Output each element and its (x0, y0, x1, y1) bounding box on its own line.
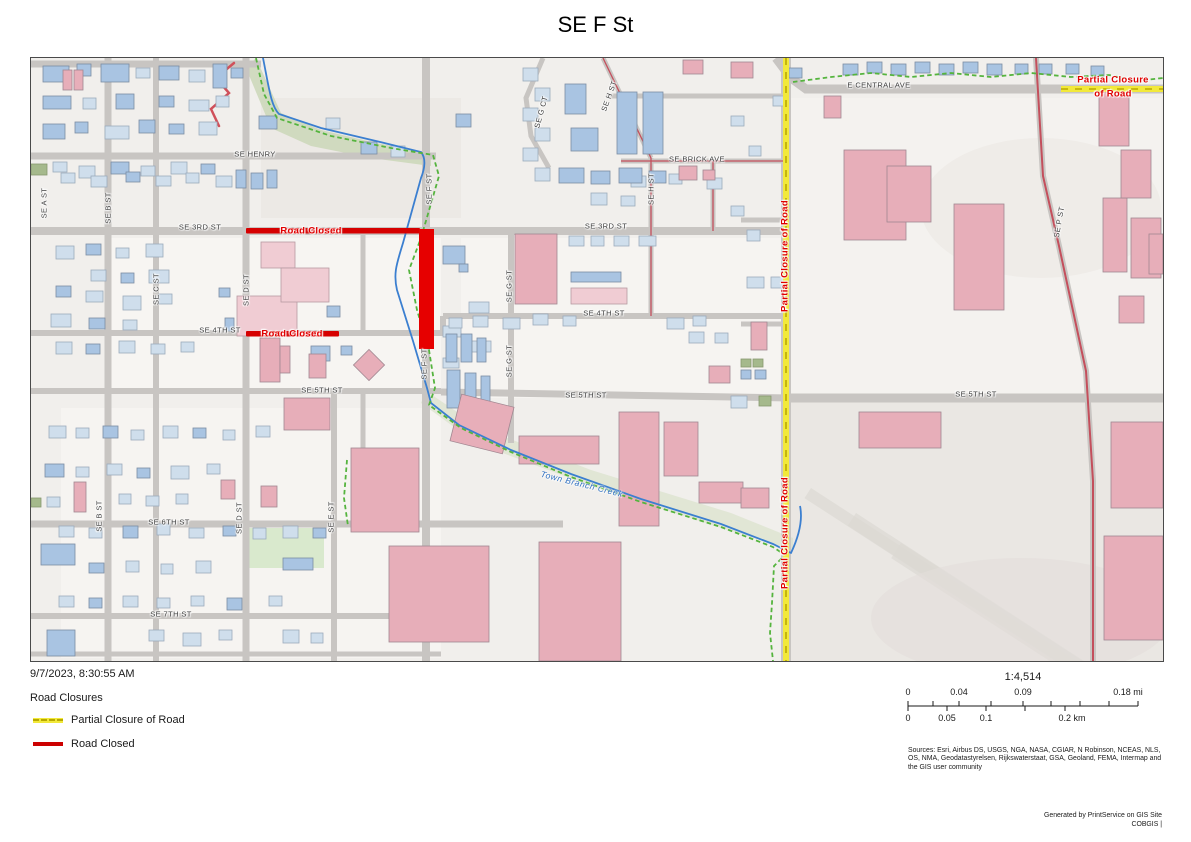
scale-km-label: 0.1 (980, 713, 993, 723)
street-label: SE B ST (95, 500, 104, 532)
street-label: SE H ST (647, 173, 656, 205)
street-label: SE F ST (425, 173, 434, 204)
scale-ratio: 1:4,514 (898, 671, 1148, 683)
street-label: SE BRICK AVE (669, 155, 725, 164)
street-label: SE B ST (104, 192, 113, 224)
print-page: SE F St E CENTRAL AVESE HENRYSE BRICK AV… (0, 0, 1191, 842)
scale-mi-label: 0.18 mi (1113, 687, 1143, 697)
street-label: SE 5TH ST (955, 390, 997, 399)
street-label: SE 3RD ST (179, 223, 221, 232)
generated-line2: COBGIS | (862, 821, 1162, 830)
street-label: SE D ST (235, 502, 244, 534)
road-closed-label: Road Closed (280, 226, 341, 237)
street-label: SE D ST (242, 274, 251, 306)
scale-mi-label: 0.09 (1014, 687, 1032, 697)
scale-mi-label: 0 (905, 687, 910, 697)
street-label: SE 7TH ST (150, 610, 192, 619)
street-label: E CENTRAL AVE (847, 81, 910, 90)
timestamp: 9/7/2023, 8:30:55 AM (30, 668, 135, 680)
street-label: SE 4TH ST (199, 326, 241, 335)
scale-bar (900, 698, 1150, 714)
partial-closure-label: Partial Closure (1077, 75, 1149, 86)
street-label: SE F ST (420, 348, 429, 379)
map-graphics (31, 58, 1163, 661)
street-label: SE 6TH ST (148, 518, 190, 527)
legend-item: Partial Closure of Road (33, 714, 185, 726)
street-label: SE G ST (505, 270, 514, 302)
street-label: SE G ST (505, 345, 514, 377)
street-label: SE C ST (152, 273, 161, 305)
street-label: SE HENRY (234, 150, 275, 159)
page-title: SE F St (0, 12, 1191, 38)
legend-heading: Road Closures (30, 692, 103, 704)
road-closed-swatch (33, 742, 63, 746)
street-label: SE A ST (40, 188, 49, 219)
partial-closure-label: of Road (1094, 89, 1131, 100)
scale-km-label: 0 (905, 713, 910, 723)
street-label: SE 5TH ST (301, 386, 343, 395)
generated-line1: Generated by PrintService on GIS Site (862, 812, 1162, 821)
street-label: SE 5TH ST (565, 391, 607, 400)
street-label: SE 3RD ST (585, 222, 627, 231)
legend-item-label: Road Closed (71, 738, 135, 750)
legend-item: Road Closed (33, 738, 135, 750)
map-canvas: E CENTRAL AVESE HENRYSE BRICK AVESE 3RD … (30, 57, 1164, 662)
street-label: SE E ST (327, 501, 336, 533)
partial-closure-label: Partial Closure of Road (780, 200, 791, 312)
street-label: SE 4TH ST (583, 309, 625, 318)
scale-km-label: 0.2 km (1058, 713, 1085, 723)
partial-closure-swatch (33, 718, 63, 723)
legend-item-label: Partial Closure of Road (71, 714, 185, 726)
partial-closure-label: Partial Closure of Road (780, 477, 791, 589)
scale-km-label: 0.05 (938, 713, 956, 723)
scale-mi-label: 0.04 (950, 687, 968, 697)
generated-by-text: Generated by PrintService on GIS Site CO… (862, 812, 1162, 829)
road-closed-label: Road Closed (261, 329, 322, 340)
sources-text: Sources: Esri, Airbus DS, USGS, NGA, NAS… (908, 747, 1166, 772)
